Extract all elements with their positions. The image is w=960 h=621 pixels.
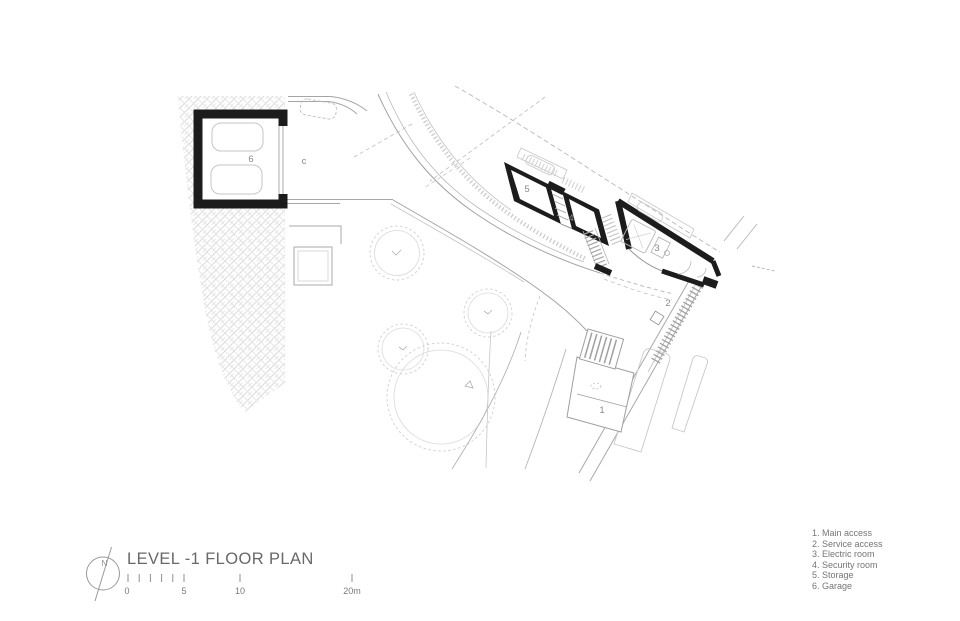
scale-label-0: 0 [124, 586, 129, 596]
drawing-title: LEVEL -1 FLOOR PLAN [127, 550, 314, 569]
garage-room [194, 110, 289, 208]
north-label: N [101, 558, 107, 568]
electric-room [618, 193, 719, 285]
legend-item-service-access: 2. Service access [812, 539, 883, 550]
scale-bar: 0 5 10 20m [124, 574, 360, 596]
label-main-access: 1 [599, 405, 604, 416]
north-arrow: N [87, 547, 120, 601]
label-security-room: 4 [568, 213, 573, 224]
legend-item-electric-room: 3. Electric room [812, 549, 883, 560]
label-service-access: 2 [665, 298, 670, 309]
label-garage: 6 [248, 154, 253, 165]
floor-plan-sheet: 6 c 5 4 3 2 1 N 0 5 10 20m LEVEL -1 FLOO… [0, 0, 960, 621]
legend-item-main-access: 1. Main access [812, 528, 883, 539]
planter [289, 226, 341, 285]
security-room [562, 191, 617, 273]
main-access [567, 329, 634, 432]
label-driveway: c [302, 156, 307, 167]
scale-label-10: 10 [235, 586, 245, 596]
legend: 1. Main access 2. Service access 3. Elec… [812, 528, 883, 592]
label-storage: 5 [524, 184, 529, 195]
label-electric-room: 3 [654, 243, 659, 254]
scale-label-20m: 20m [343, 586, 361, 596]
legend-item-security-room: 4. Security room [812, 560, 883, 571]
scale-label-5: 5 [181, 586, 186, 596]
legend-item-garage: 6. Garage [812, 581, 883, 592]
legend-item-storage: 5. Storage [812, 570, 883, 581]
